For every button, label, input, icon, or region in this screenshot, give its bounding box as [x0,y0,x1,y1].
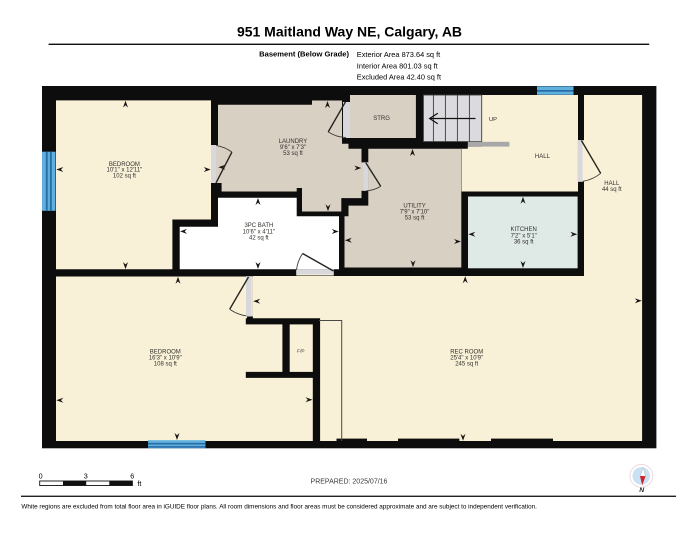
svg-text:LAUNDRY: LAUNDRY [279,139,308,145]
svg-text:36 sq ft: 36 sq ft [514,239,534,245]
svg-text:108 sq ft: 108 sq ft [154,362,177,368]
svg-text:PREPARED: 2025/07/16: PREPARED: 2025/07/16 [311,478,388,485]
svg-text:White regions are excluded fro: White regions are excluded from total fl… [21,503,537,510]
svg-text:53 sq ft: 53 sq ft [405,216,425,222]
svg-text:KITCHEN: KITCHEN [511,227,537,233]
svg-text:F/P: F/P [297,349,304,355]
svg-text:BEDROOM: BEDROOM [150,349,181,355]
svg-text:Exterior Area 873.64 sq ft: Exterior Area 873.64 sq ft [357,50,440,59]
svg-text:102 sq ft: 102 sq ft [113,174,136,180]
svg-text:3PC BATH: 3PC BATH [244,223,273,229]
svg-text:42 sq ft: 42 sq ft [249,236,269,242]
svg-text:HALL: HALL [535,154,551,160]
svg-text:245 sq ft: 245 sq ft [455,362,478,368]
svg-text:3: 3 [84,471,88,480]
svg-text:951 Maitland Way NE, Calgary,: 951 Maitland Way NE, Calgary, AB [237,23,462,39]
svg-text:25'4" x 10'9": 25'4" x 10'9" [450,356,483,362]
svg-text:53 sq ft: 53 sq ft [283,151,303,157]
svg-text:UP: UP [489,117,497,123]
svg-text:HALL: HALL [604,181,620,187]
svg-text:0: 0 [39,471,43,480]
svg-text:6: 6 [130,471,134,480]
svg-text:N: N [639,487,645,494]
svg-text:Interior Area 801.03 sq ft: Interior Area 801.03 sq ft [357,61,438,70]
svg-text:UTILITY: UTILITY [403,204,425,210]
svg-text:STRG: STRG [373,116,390,122]
svg-text:16'3" x 10'9": 16'3" x 10'9" [149,356,182,362]
svg-text:10'6" x 4'11": 10'6" x 4'11" [243,229,275,235]
svg-text:Basement (Below Grade): Basement (Below Grade) [259,50,349,59]
svg-text:ft: ft [137,479,141,488]
svg-text:REC ROOM: REC ROOM [450,349,483,355]
svg-text:Excluded Area 42.40 sq ft: Excluded Area 42.40 sq ft [357,73,441,82]
svg-text:44 sq ft: 44 sq ft [602,187,622,193]
